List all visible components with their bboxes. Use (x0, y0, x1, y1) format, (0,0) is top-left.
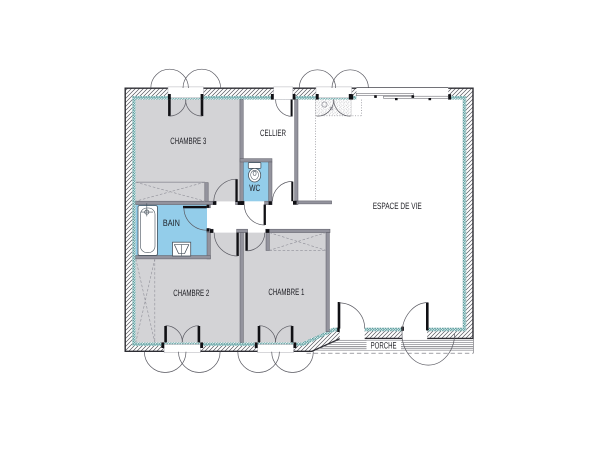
svg-text:PORCHE: PORCHE (371, 341, 397, 351)
svg-text:CHAMBRE 1: CHAMBRE 1 (268, 287, 304, 297)
svg-text:CHAMBRE 2: CHAMBRE 2 (173, 288, 209, 298)
svg-text:BAIN: BAIN (163, 218, 180, 228)
svg-text:CHAMBRE 3: CHAMBRE 3 (170, 136, 206, 146)
svg-text:WC: WC (249, 183, 260, 193)
svg-text:ESPACE DE VIE: ESPACE DE VIE (373, 201, 422, 211)
svg-text:CELLIER: CELLIER (260, 128, 286, 138)
